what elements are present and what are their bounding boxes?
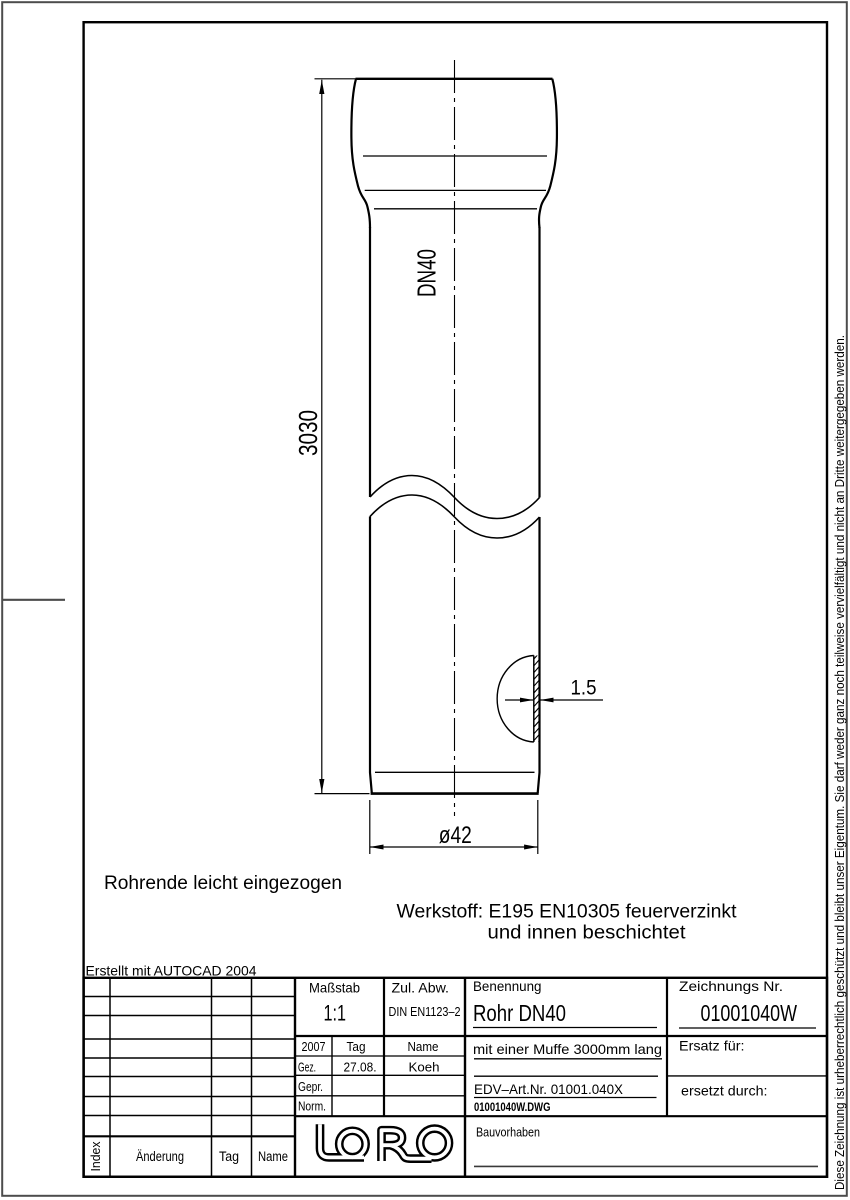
svg-text:und innen beschichtet: und innen beschichtet: [488, 923, 687, 944]
svg-text:Gez.: Gez.: [298, 1060, 316, 1075]
svg-text:01001040W: 01001040W: [701, 1000, 798, 1026]
svg-text:Zeichnungs Nr.: Zeichnungs Nr.: [679, 978, 783, 994]
svg-text:Rohr DN40: Rohr DN40: [473, 1000, 566, 1026]
svg-text:Bauvorhaben: Bauvorhaben: [476, 1125, 540, 1140]
svg-text:ø42: ø42: [439, 822, 472, 849]
svg-text:Name: Name: [258, 1149, 288, 1164]
svg-text:Diese Zeichnung ist urheberrec: Diese Zeichnung ist urheberrechtlich ges…: [832, 335, 847, 1190]
svg-text:Erstellt mit AUTOCAD 2004: Erstellt mit AUTOCAD 2004: [86, 963, 257, 979]
svg-text:Maßstab: Maßstab: [309, 980, 360, 996]
svg-text:2007: 2007: [302, 1039, 326, 1054]
svg-text:3030: 3030: [293, 410, 323, 456]
svg-text:Ersatz für:: Ersatz für:: [679, 1038, 745, 1054]
svg-text:Index: Index: [89, 1141, 103, 1172]
svg-text:Tag: Tag: [219, 1149, 239, 1164]
svg-text:Werkstoff: E195 EN10305 feu: Werkstoff: E195 EN10305 feuerverzinkt: [397, 902, 738, 923]
svg-text:ersetzt durch:: ersetzt durch:: [681, 1083, 768, 1099]
svg-text:DN40: DN40: [412, 249, 442, 297]
svg-text:1:1: 1:1: [324, 1001, 347, 1026]
svg-text:27.08.: 27.08.: [344, 1060, 377, 1075]
svg-text:1.5: 1.5: [571, 677, 597, 700]
svg-text:Norm.: Norm.: [298, 1099, 326, 1114]
svg-text:Koeh: Koeh: [409, 1060, 440, 1075]
svg-text:EDV–Art.Nr. 01001.040X: EDV–Art.Nr. 01001.040X: [474, 1081, 624, 1097]
svg-text:Name: Name: [408, 1039, 439, 1054]
svg-text:Gepr.: Gepr.: [298, 1079, 323, 1094]
svg-text:Benennung: Benennung: [473, 978, 542, 994]
svg-text:Änderung: Änderung: [136, 1149, 184, 1164]
svg-text:Rohrende leicht eingezogen: Rohrende leicht eingezogen: [104, 873, 342, 894]
svg-text:Zul. Abw.: Zul. Abw.: [392, 980, 450, 996]
svg-text:DIN EN1123–2: DIN EN1123–2: [389, 1004, 461, 1019]
svg-text:Tag: Tag: [347, 1039, 366, 1054]
svg-text:01001040W.DWG: 01001040W.DWG: [474, 1102, 551, 1114]
svg-text:mit einer Muffe 3000mm lan: mit einer Muffe 3000mm lang: [473, 1041, 662, 1057]
